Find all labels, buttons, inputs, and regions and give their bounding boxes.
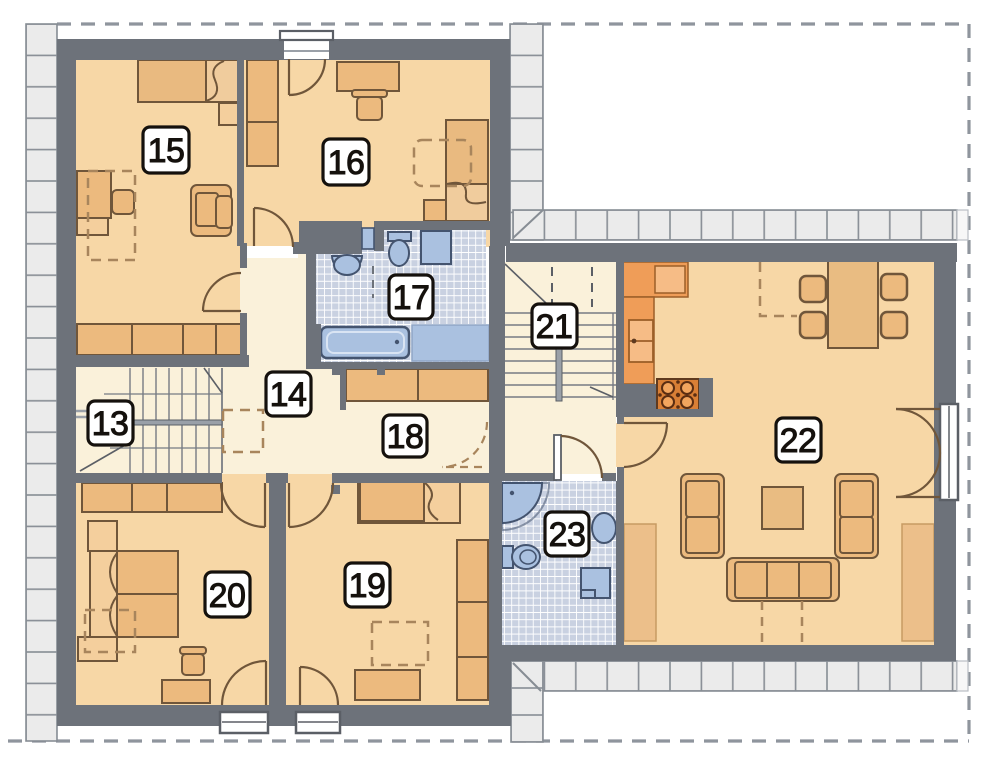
- svg-text:16: 16: [328, 144, 365, 182]
- svg-text:22: 22: [780, 422, 817, 460]
- svg-text:15: 15: [148, 132, 185, 170]
- svg-text:14: 14: [270, 376, 307, 414]
- svg-text:17: 17: [393, 279, 430, 317]
- svg-text:20: 20: [209, 577, 246, 615]
- svg-text:13: 13: [92, 405, 129, 443]
- svg-text:21: 21: [536, 308, 573, 346]
- svg-text:18: 18: [387, 418, 424, 456]
- svg-text:23: 23: [549, 516, 586, 554]
- svg-text:19: 19: [349, 567, 386, 605]
